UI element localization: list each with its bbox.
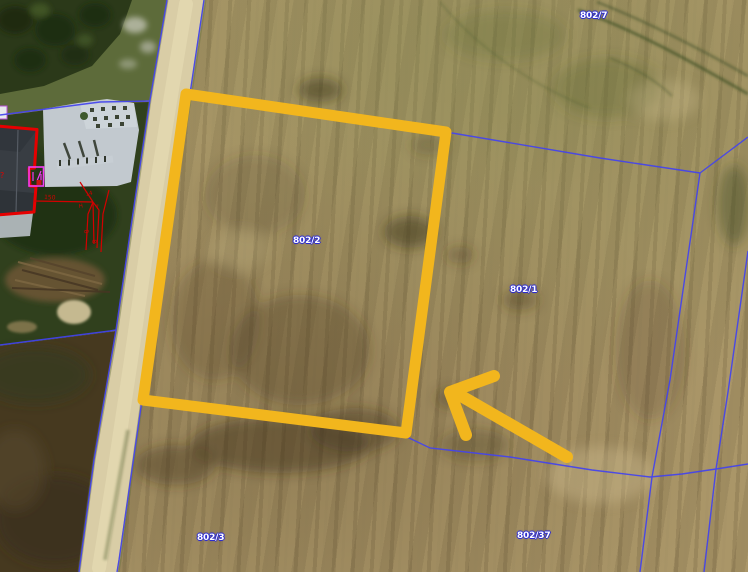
aerial-imagery-layer: 150 14 H 7 8 8 ? bbox=[0, 0, 748, 572]
svg-text:150: 150 bbox=[44, 194, 56, 202]
map-canvas[interactable]: 150 14 H 7 8 8 ? 802/7 802/2 802/1 802/3… bbox=[0, 0, 748, 572]
sand-patch bbox=[57, 300, 91, 324]
svg-text:H: H bbox=[78, 203, 83, 210]
svg-text:?: ? bbox=[0, 171, 4, 180]
boundary-upper-right bbox=[700, 137, 748, 173]
parcel-label-802-7: 802/7 bbox=[580, 11, 607, 21]
field-texture bbox=[135, 10, 748, 503]
boundary-upper bbox=[446, 132, 700, 173]
parcel-label-802-3: 802/3 bbox=[197, 533, 224, 543]
parcel-label-802-37: 802/37 bbox=[517, 531, 550, 541]
adjacent-structure bbox=[0, 106, 7, 119]
forest-block bbox=[0, 0, 167, 114]
parcel-label-802-2: 802/2 bbox=[293, 236, 320, 246]
boundary-right-vertical bbox=[704, 251, 748, 572]
parcel-label-802-1: 802/1 bbox=[510, 285, 537, 295]
